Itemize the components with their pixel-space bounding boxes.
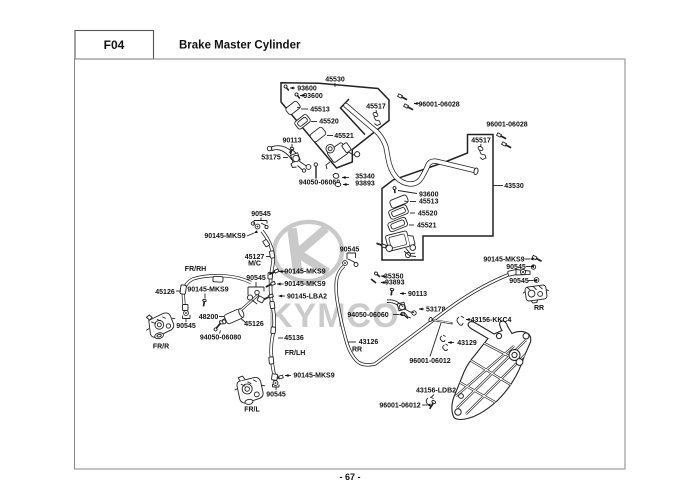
svg-text:43156-LDB2: 43156-LDB2: [416, 388, 456, 395]
svg-text:93600: 93600: [419, 192, 439, 199]
svg-text:- 67 -: - 67 -: [339, 472, 360, 482]
svg-text:FR/R: FR/R: [153, 344, 169, 351]
svg-text:94050-06060: 94050-06060: [347, 312, 388, 319]
svg-text:93893: 93893: [385, 280, 405, 287]
svg-text:FR/LH: FR/LH: [285, 350, 306, 357]
svg-text:FR/RH: FR/RH: [185, 266, 206, 273]
svg-text:90145-MKS9: 90145-MKS9: [204, 233, 245, 240]
svg-text:90545: 90545: [266, 392, 286, 399]
svg-text:90145-MKS9: 90145-MKS9: [284, 281, 325, 288]
svg-text:35340: 35340: [355, 174, 375, 181]
svg-text:93600: 93600: [303, 93, 323, 100]
svg-text:43156-KKC4: 43156-KKC4: [471, 317, 512, 324]
svg-text:90545: 90545: [176, 323, 196, 330]
svg-text:96001-06028: 96001-06028: [418, 102, 459, 109]
svg-text:45530: 45530: [325, 77, 345, 84]
svg-text:90545: 90545: [246, 275, 266, 282]
svg-text:45517: 45517: [366, 104, 386, 111]
svg-text:43530: 43530: [504, 183, 524, 190]
svg-text:45517: 45517: [471, 138, 491, 145]
svg-text:90145-MKS9: 90145-MKS9: [187, 287, 228, 294]
svg-text:90145-MKS9: 90145-MKS9: [483, 257, 524, 264]
svg-text:96001-06012: 96001-06012: [409, 358, 450, 365]
svg-text:90145-MKS9: 90145-MKS9: [284, 269, 325, 276]
svg-text:93600: 93600: [297, 86, 317, 93]
svg-text:96001-06012: 96001-06012: [379, 403, 420, 410]
svg-text:45521: 45521: [334, 133, 354, 140]
svg-text:90545: 90545: [506, 264, 526, 271]
svg-text:90545: 90545: [251, 211, 271, 218]
svg-text:45521: 45521: [417, 223, 437, 230]
svg-text:RR: RR: [534, 305, 544, 312]
svg-text:43126: 43126: [359, 339, 379, 346]
svg-text:45136: 45136: [284, 335, 304, 342]
svg-text:M/C: M/C: [248, 261, 261, 268]
svg-text:94050-06060: 94050-06060: [299, 180, 340, 187]
svg-text:45126: 45126: [155, 289, 175, 296]
svg-text:45513: 45513: [310, 107, 330, 114]
svg-text:96001-06028: 96001-06028: [486, 122, 527, 129]
svg-text:45513: 45513: [419, 199, 439, 206]
svg-text:45126: 45126: [244, 321, 264, 328]
svg-text:45520: 45520: [418, 211, 438, 218]
svg-text:45520: 45520: [319, 119, 339, 126]
svg-text:90113: 90113: [408, 291, 427, 298]
svg-text:90113: 90113: [282, 138, 301, 145]
svg-text:Brake Master Cylinder: Brake Master Cylinder: [179, 40, 301, 52]
svg-text:43129: 43129: [457, 340, 477, 347]
svg-text:90545: 90545: [340, 247, 360, 254]
svg-text:48200: 48200: [199, 314, 219, 321]
svg-text:F04: F04: [104, 38, 125, 52]
svg-text:90545: 90545: [509, 278, 529, 285]
svg-text:53175: 53175: [261, 155, 281, 162]
svg-text:90145-LBA2: 90145-LBA2: [287, 294, 327, 301]
svg-text:94050-06080: 94050-06080: [200, 335, 241, 342]
svg-text:90145-MKS9: 90145-MKS9: [293, 373, 334, 380]
svg-text:RR: RR: [352, 347, 362, 354]
svg-text:FR/L: FR/L: [244, 407, 260, 414]
svg-text:93893: 93893: [355, 181, 375, 188]
